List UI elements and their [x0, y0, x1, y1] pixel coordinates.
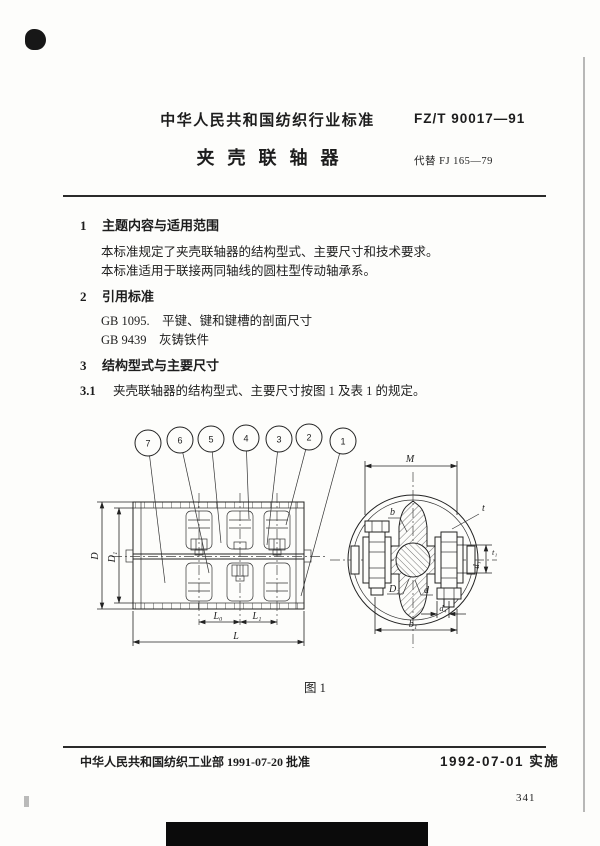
scan-artifact-edge-line	[583, 57, 585, 812]
dim-label-d4: d₄	[439, 603, 446, 613]
reference-gb9439: GB 9439 灰铸铁件	[101, 329, 209, 348]
reference-gb1095: GB 1095. 平键、键和键槽的剖面尺寸	[101, 310, 312, 329]
section-1-paragraph-1: 本标准规定了夹壳联轴器的结构型式、主要尺寸和技术要求。	[101, 241, 439, 260]
callout-1: 1	[330, 428, 356, 454]
section-1-paragraph-2: 本标准适用于联接两同轴线的圆柱型传动轴承系。	[101, 260, 376, 279]
dim-label-M: M	[405, 454, 415, 465]
dim-label-L0: L₀	[212, 611, 223, 622]
section-2-heading: 2引用标准	[80, 286, 154, 305]
callout-6-label: 6	[177, 436, 182, 446]
section-3-number: 3	[80, 358, 102, 374]
side-view-drawing: D D₁ L₀ L₁ L	[90, 493, 325, 646]
dim-label-b1: b₁	[409, 619, 417, 630]
dim-label-t: t	[482, 503, 485, 514]
callout-leader-lines	[148, 437, 343, 596]
section-1-number: 1	[80, 218, 102, 234]
callout-1-label: 1	[340, 437, 345, 447]
section-1-heading: 1主题内容与适用范围	[80, 215, 219, 234]
section-3-1-text: 夹壳联轴器的结构型式、主要尺寸按图 1 及表 1 的规定。	[113, 384, 426, 398]
standard-org-title: 中华人民共和国纺织行业标准	[100, 109, 435, 130]
section-3-1-number: 3.1	[80, 384, 113, 399]
section-3-title: 结构型式与主要尺寸	[102, 358, 219, 373]
dim-label-D1: D₁	[107, 552, 118, 564]
callout-5-label: 5	[208, 435, 213, 445]
callout-7: 7	[135, 430, 161, 456]
doc-title: 夹壳联轴器	[100, 144, 435, 170]
section-2-number: 2	[80, 289, 102, 305]
callout-2: 2	[296, 424, 322, 450]
callout-5: 5	[198, 426, 224, 452]
section-3-heading: 3结构型式与主要尺寸	[80, 355, 219, 374]
section-1-title: 主题内容与适用范围	[102, 218, 219, 233]
callout-4: 4	[233, 425, 259, 451]
approval-note: 中华人民共和国纺织工业部 1991-07-20 批准	[80, 753, 310, 770]
standard-code: FZ/T 90017—91	[414, 111, 525, 126]
dim-label-L1: L₁	[251, 611, 261, 622]
figure-1-caption: 图 1	[270, 677, 360, 696]
dim-label-t1: t₁	[492, 547, 497, 557]
page-number: 341	[516, 792, 536, 804]
scan-artifact-bar	[166, 822, 428, 846]
callout-balloons: 7 6 5 4 3 2 1	[135, 424, 356, 456]
callout-3-label: 3	[276, 435, 281, 445]
callout-2-label: 2	[306, 433, 311, 443]
dim-label-D2: D₂	[388, 584, 400, 595]
shaft-section	[396, 543, 430, 577]
figure-1-drawing: 7 6 5 4 3 2 1	[0, 415, 600, 660]
header-rule	[63, 195, 546, 197]
implementation-date: 1992-07-01 实施	[440, 750, 546, 770]
section-3-1-line: 3.1夹壳联轴器的结构型式、主要尺寸按图 1 及表 1 的规定。	[80, 380, 426, 399]
callout-4-label: 4	[243, 434, 248, 444]
end-view-drawing: M t b t₁ d₁ D₂ d d₄	[330, 454, 497, 648]
left-bolt-assembly	[363, 521, 391, 595]
dim-label-d1: d₁	[471, 561, 481, 568]
section-2-title: 引用标准	[102, 289, 154, 304]
callout-6: 6	[167, 427, 193, 453]
scan-artifact-blob	[25, 29, 46, 50]
dim-label-D: D	[90, 552, 101, 561]
callout-7-label: 7	[145, 439, 150, 449]
callout-3: 3	[266, 426, 292, 452]
document-page: 中华人民共和国纺织行业标准 FZ/T 90017—91 夹壳联轴器 代替 FJ …	[0, 0, 600, 846]
replaces-note: 代替 FJ 165—79	[414, 153, 493, 168]
scan-artifact-mark	[24, 796, 29, 807]
right-bolt-assembly	[435, 532, 463, 607]
dim-label-L: L	[232, 631, 239, 642]
footer-rule	[63, 746, 546, 748]
dim-label-d: d	[424, 585, 430, 596]
dim-label-b: b	[390, 507, 395, 518]
